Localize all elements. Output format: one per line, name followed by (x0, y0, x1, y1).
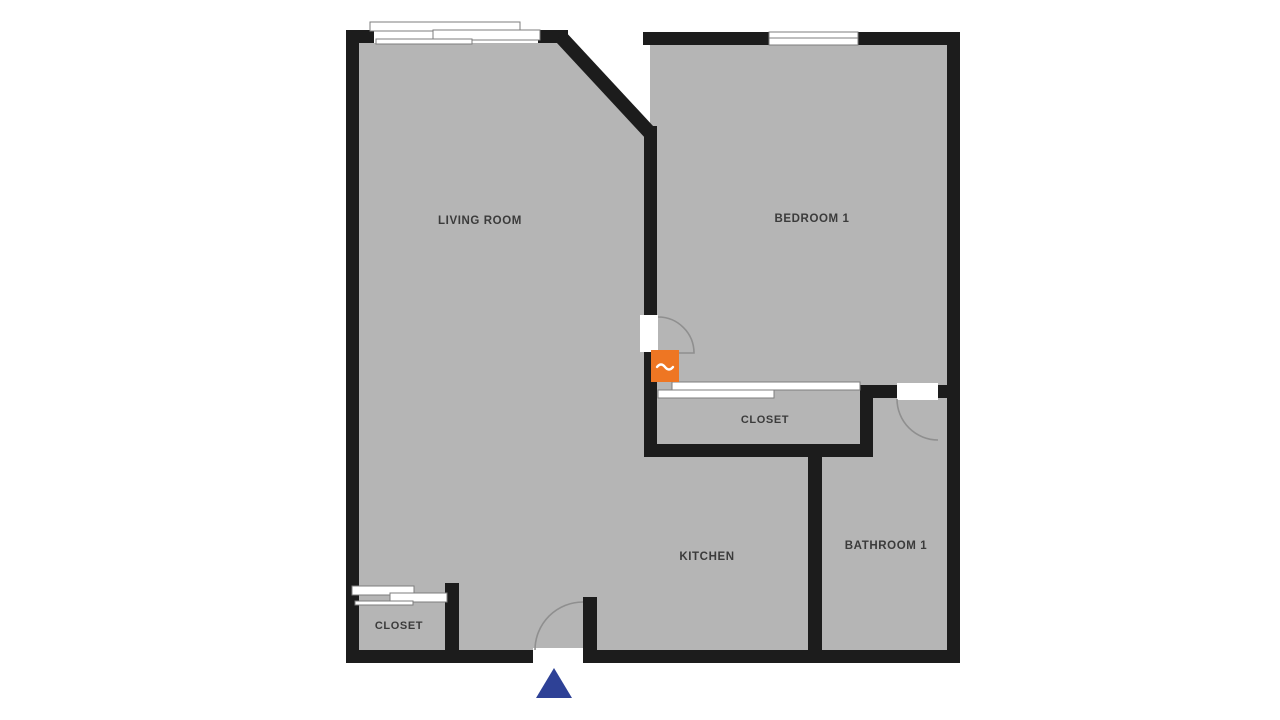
room-label-entry-closet: CLOSET (375, 620, 423, 632)
room-label-living-room: LIVING ROOM (438, 215, 522, 227)
brand-marker (651, 350, 679, 382)
room-label-kitchen: KITCHEN (679, 551, 734, 563)
entry-closet-slider-3 (355, 601, 413, 605)
floorplan-canvas: LIVING ROOM BEDROOM 1 CLOSET KITCHEN BAT… (0, 0, 1280, 720)
bedroom-closet-slider-1 (672, 382, 860, 390)
bedroom-door-opening (640, 315, 658, 352)
entrance-door-opening (533, 648, 585, 665)
wall-closet-bottom (644, 444, 873, 457)
wall-bathroom-top-a (860, 385, 897, 398)
wall-bathroom-top-b (938, 385, 960, 398)
room-label-bedroom-closet: CLOSET (741, 414, 789, 426)
wall-outer-right (947, 32, 960, 663)
wall-top-bedroom-a (643, 32, 769, 45)
room-label-bathroom-1: BATHROOM 1 (845, 540, 927, 552)
wall-top-living-a (346, 30, 374, 43)
bedroom-closet-slider-2 (658, 390, 774, 398)
entrance-marker-icon (536, 668, 572, 698)
wall-divider-upper (644, 126, 657, 315)
bathroom-door-opening (897, 383, 938, 400)
living-room-window-panel-3 (376, 39, 472, 44)
wall-entrance-stub (583, 597, 597, 663)
room-label-bedroom-1: BEDROOM 1 (774, 213, 849, 225)
floorplan-drawing (0, 0, 1280, 720)
wall-bottom-a (346, 650, 533, 663)
wall-bottom-b (585, 650, 960, 663)
wall-outer-left (346, 30, 359, 663)
wall-top-bedroom-b (858, 32, 960, 45)
bedroom-window-panel-2 (769, 38, 858, 45)
wall-kitchen-bathroom (808, 444, 822, 663)
